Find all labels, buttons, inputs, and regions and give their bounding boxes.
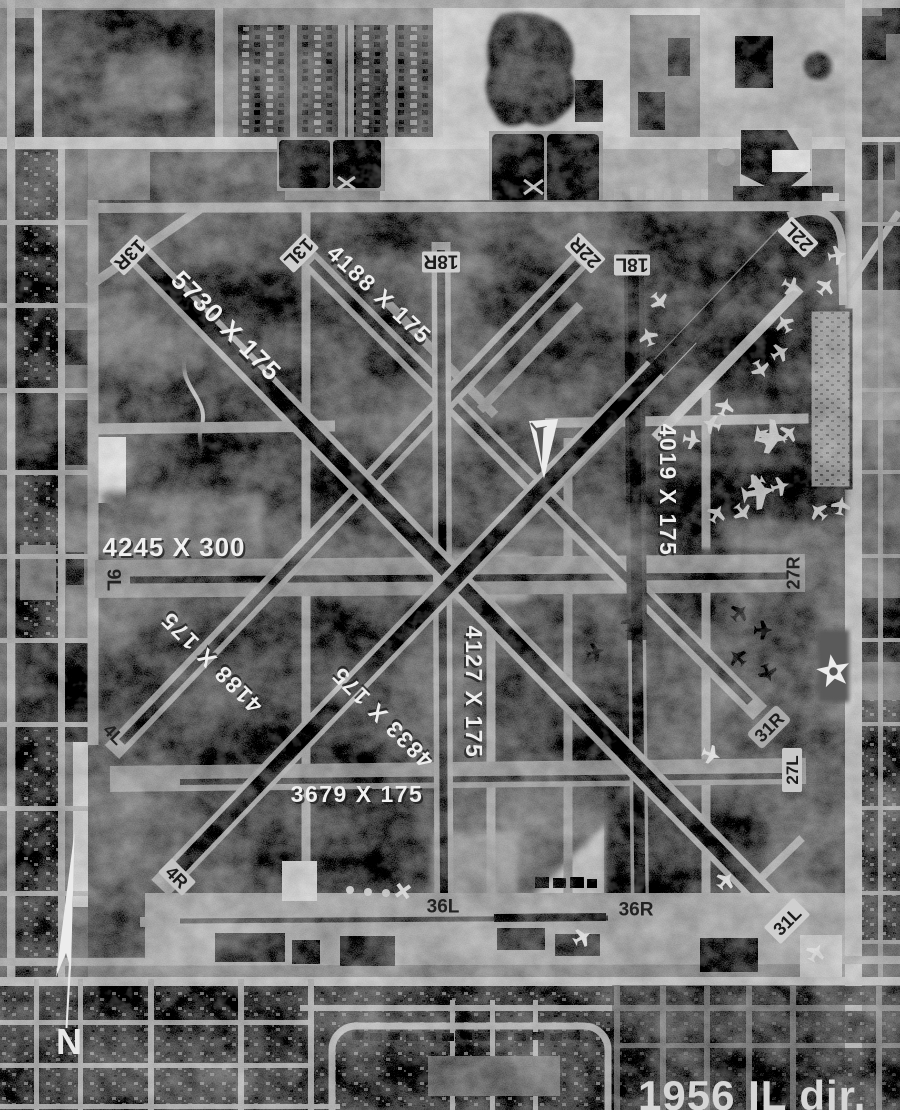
svg-text:9L: 9L	[103, 569, 124, 592]
svg-text:36L: 36L	[427, 897, 460, 918]
svg-text:27R: 27R	[784, 556, 804, 589]
svg-text:1956 IL dir.: 1956 IL dir.	[638, 1072, 866, 1110]
svg-text:4245 X 300: 4245 X 300	[102, 532, 245, 562]
svg-text:18L: 18L	[615, 254, 648, 275]
svg-text:4127 X 175: 4127 X 175	[461, 626, 487, 759]
svg-text:36R: 36R	[619, 900, 654, 921]
svg-text:27L: 27L	[783, 755, 802, 784]
svg-text:4019 X 175: 4019 X 175	[655, 424, 681, 557]
svg-text:18R: 18R	[423, 251, 458, 272]
svg-text:3679 X 175: 3679 X 175	[291, 781, 424, 807]
svg-text:N: N	[56, 1021, 82, 1062]
